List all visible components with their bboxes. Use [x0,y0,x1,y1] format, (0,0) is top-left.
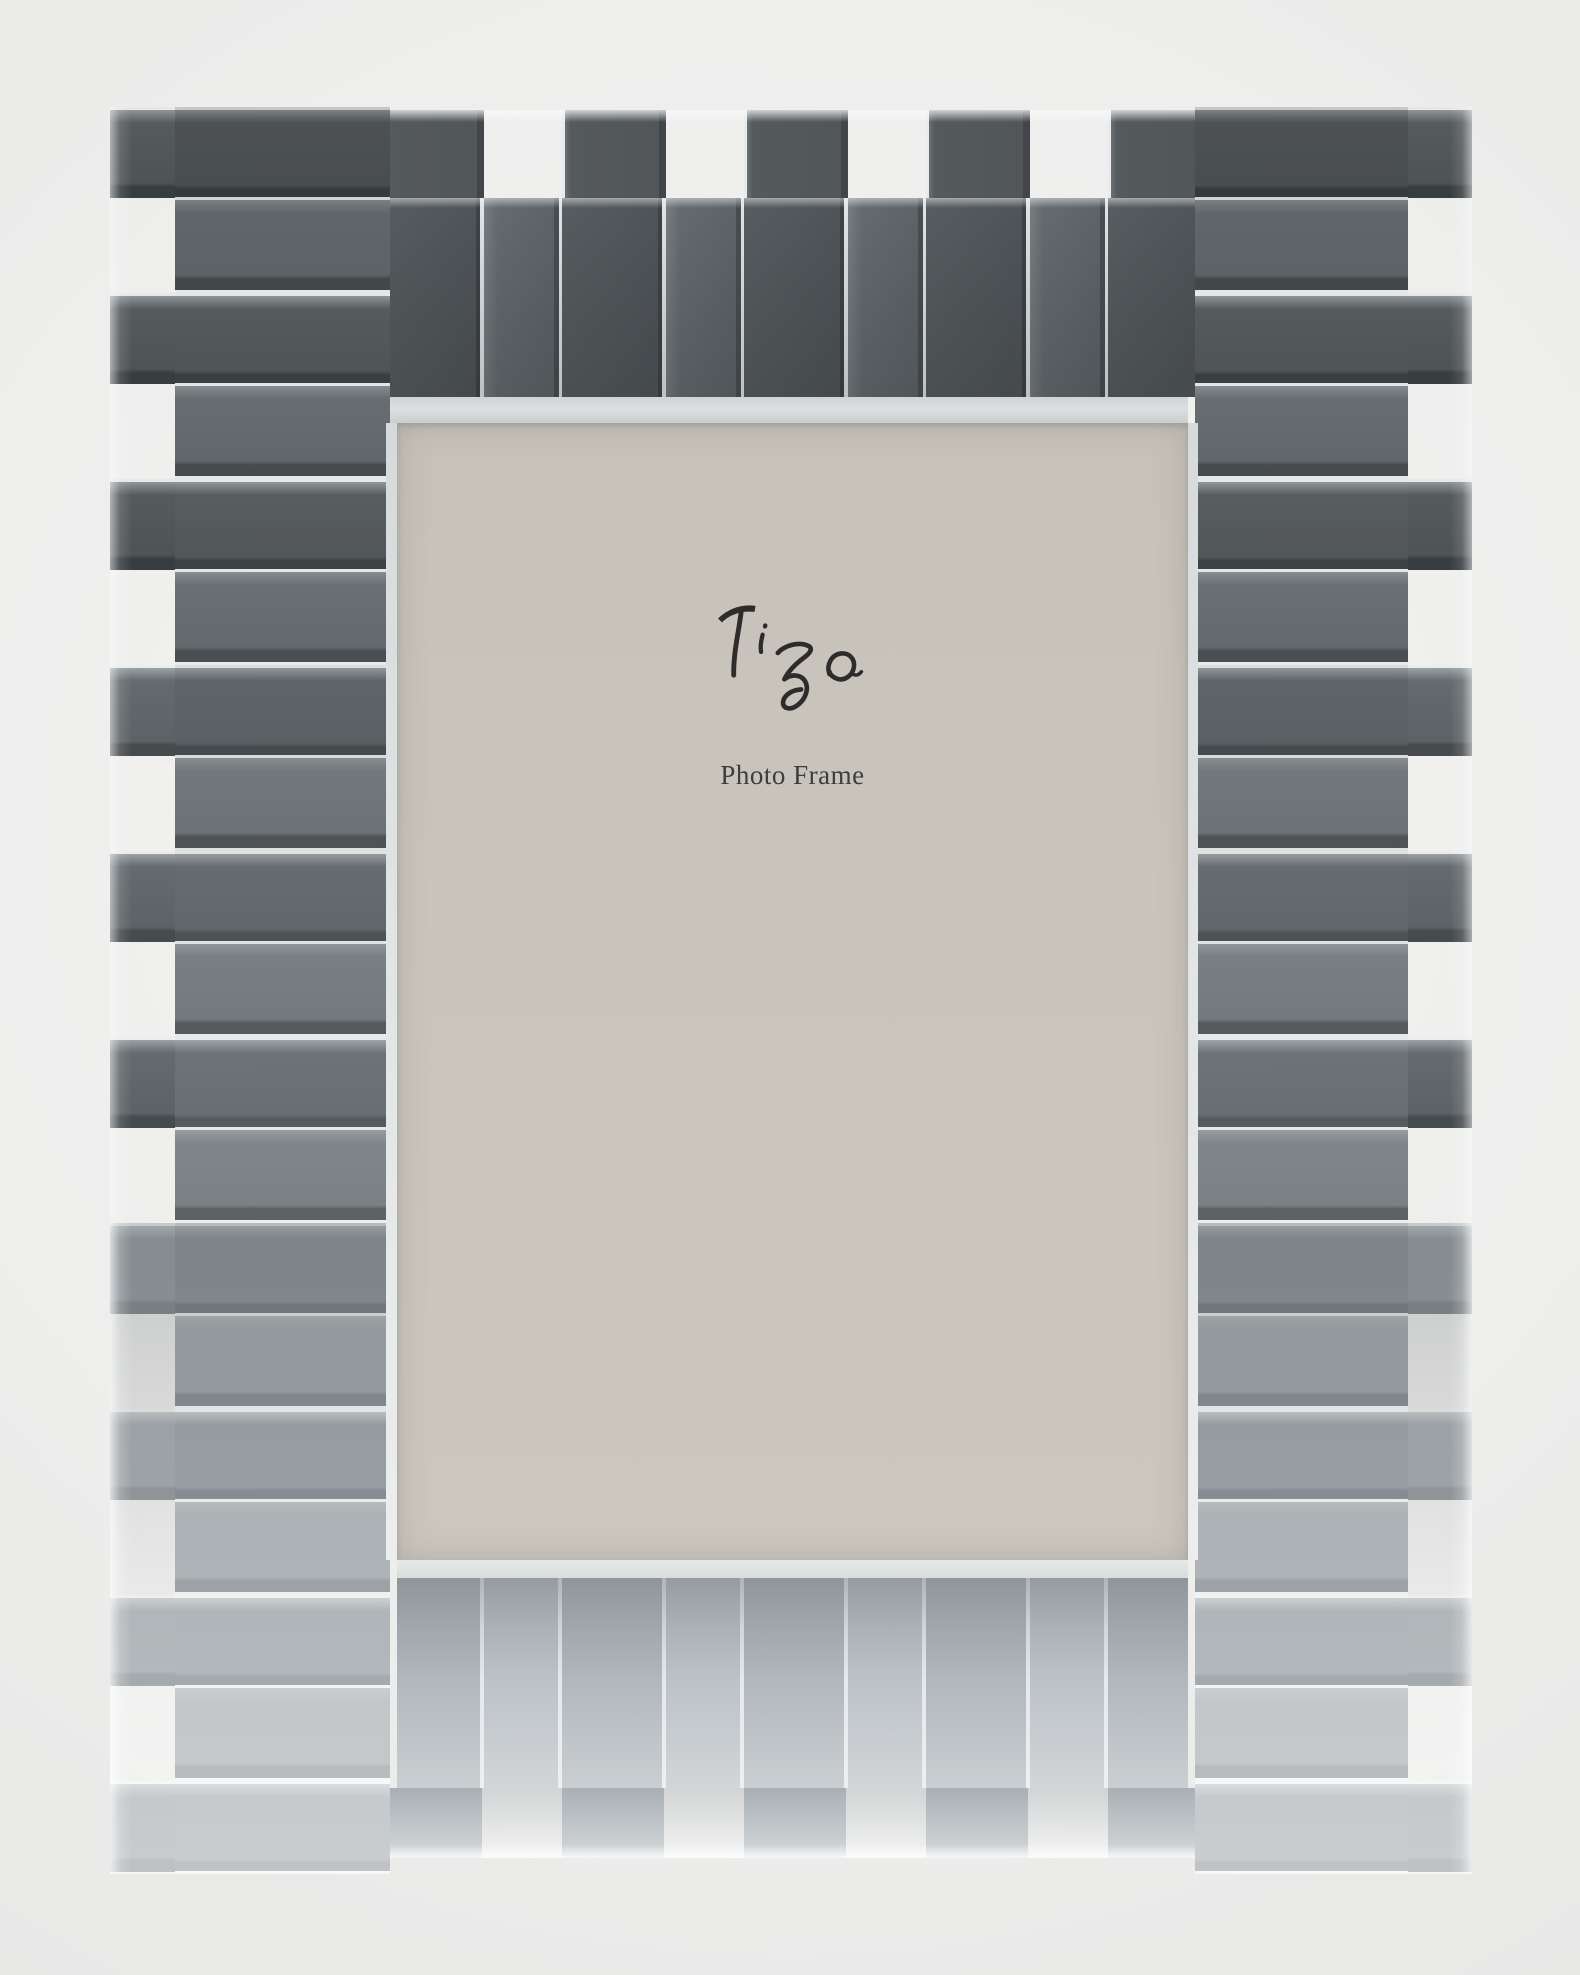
photo-frame-caption: Photo Frame [397,757,1188,793]
frame-top-blocks [380,198,1236,397]
logo-o-flick [852,672,862,675]
frame-top-inner-lip [390,397,1188,423]
frame-right-protruding-blocks-top [1408,107,1472,665]
frame-left-protruding-blocks-bottom [110,1223,175,1874]
frame-left-protruding-blocks-top [110,107,175,665]
frame-bottom-inner-lip [397,1560,1188,1578]
frame-left-blocks-top [175,107,390,665]
logo-i [761,635,763,652]
frame-right-protruding-blocks-middle [1408,665,1472,1223]
frame-left-inner-lip [386,423,397,1560]
frame-right-inner-lip [1188,423,1198,1560]
logo-T-stem [734,610,742,675]
logo-z [778,644,811,708]
frame-left-protruding-blocks-middle [110,665,175,1223]
frame-left-blocks-bottom [175,1223,390,1874]
frame-top-tall-blocks [380,110,1236,198]
logo-o [828,653,854,679]
frame-right-blocks-middle [1195,665,1408,1223]
frame-bottom-tall-blocks [380,1788,1212,1858]
logo-i-dot [763,623,768,628]
frame-right-blocks-bottom [1195,1223,1408,1874]
product-photo: { "meta": { "type": "product-photo", "al… [0,0,1580,1975]
frame-right-blocks-top [1195,107,1408,665]
frame-right-protruding-blocks-bottom [1408,1223,1472,1874]
logo-T-bar [718,605,755,622]
photo-insert-paper [397,423,1188,1560]
frame-bottom-blocks [397,1578,1188,1788]
frame-left-blocks-middle [175,665,390,1223]
tizo-logo [716,601,868,715]
